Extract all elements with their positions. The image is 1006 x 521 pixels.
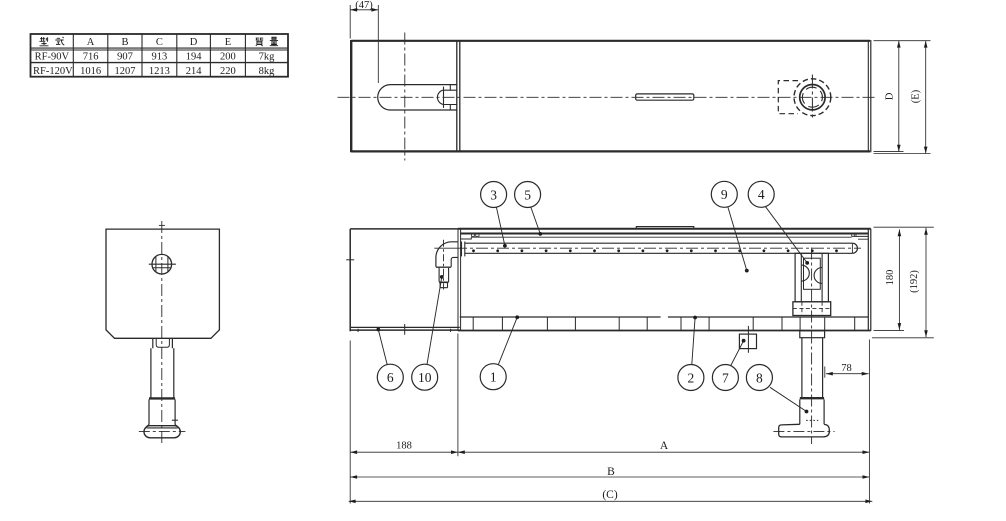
- svg-text:3: 3: [490, 187, 497, 202]
- svg-text:A: A: [660, 440, 669, 452]
- svg-text:913: 913: [152, 51, 168, 62]
- svg-text:716: 716: [83, 51, 99, 62]
- svg-text:10: 10: [418, 370, 432, 385]
- svg-text:(E): (E): [910, 89, 921, 103]
- svg-text:9: 9: [721, 187, 728, 202]
- svg-text:RF-90V: RF-90V: [35, 51, 70, 62]
- svg-text:8: 8: [756, 370, 763, 385]
- svg-text:B: B: [607, 466, 615, 478]
- svg-text:214: 214: [186, 66, 203, 77]
- svg-text:2: 2: [688, 370, 695, 385]
- svg-text:180: 180: [885, 270, 896, 286]
- svg-text:1213: 1213: [149, 66, 170, 77]
- svg-text:200: 200: [220, 51, 236, 62]
- svg-text:7kg: 7kg: [259, 51, 276, 62]
- svg-text:B: B: [121, 37, 128, 48]
- svg-text:1: 1: [490, 370, 497, 385]
- svg-text:4: 4: [758, 187, 765, 202]
- svg-text:6: 6: [387, 370, 394, 385]
- svg-text:188: 188: [396, 441, 412, 452]
- svg-text:5: 5: [524, 187, 531, 202]
- svg-text:D: D: [190, 37, 198, 48]
- svg-text:1016: 1016: [80, 66, 101, 77]
- svg-text:(C): (C): [602, 489, 618, 501]
- svg-text:7: 7: [722, 370, 729, 385]
- svg-text:194: 194: [186, 51, 203, 62]
- svg-text:A: A: [87, 37, 95, 48]
- svg-text:8kg: 8kg: [259, 66, 276, 77]
- svg-text:E: E: [225, 37, 231, 48]
- svg-text:907: 907: [117, 51, 133, 62]
- svg-text:(47): (47): [355, 0, 373, 11]
- svg-text:RF-120V: RF-120V: [33, 66, 73, 77]
- svg-text:C: C: [156, 37, 163, 48]
- svg-text:220: 220: [220, 66, 236, 77]
- svg-text:1207: 1207: [115, 66, 136, 77]
- svg-text:(192): (192): [909, 270, 920, 293]
- svg-text:78: 78: [841, 363, 852, 374]
- svg-text:D: D: [885, 92, 896, 100]
